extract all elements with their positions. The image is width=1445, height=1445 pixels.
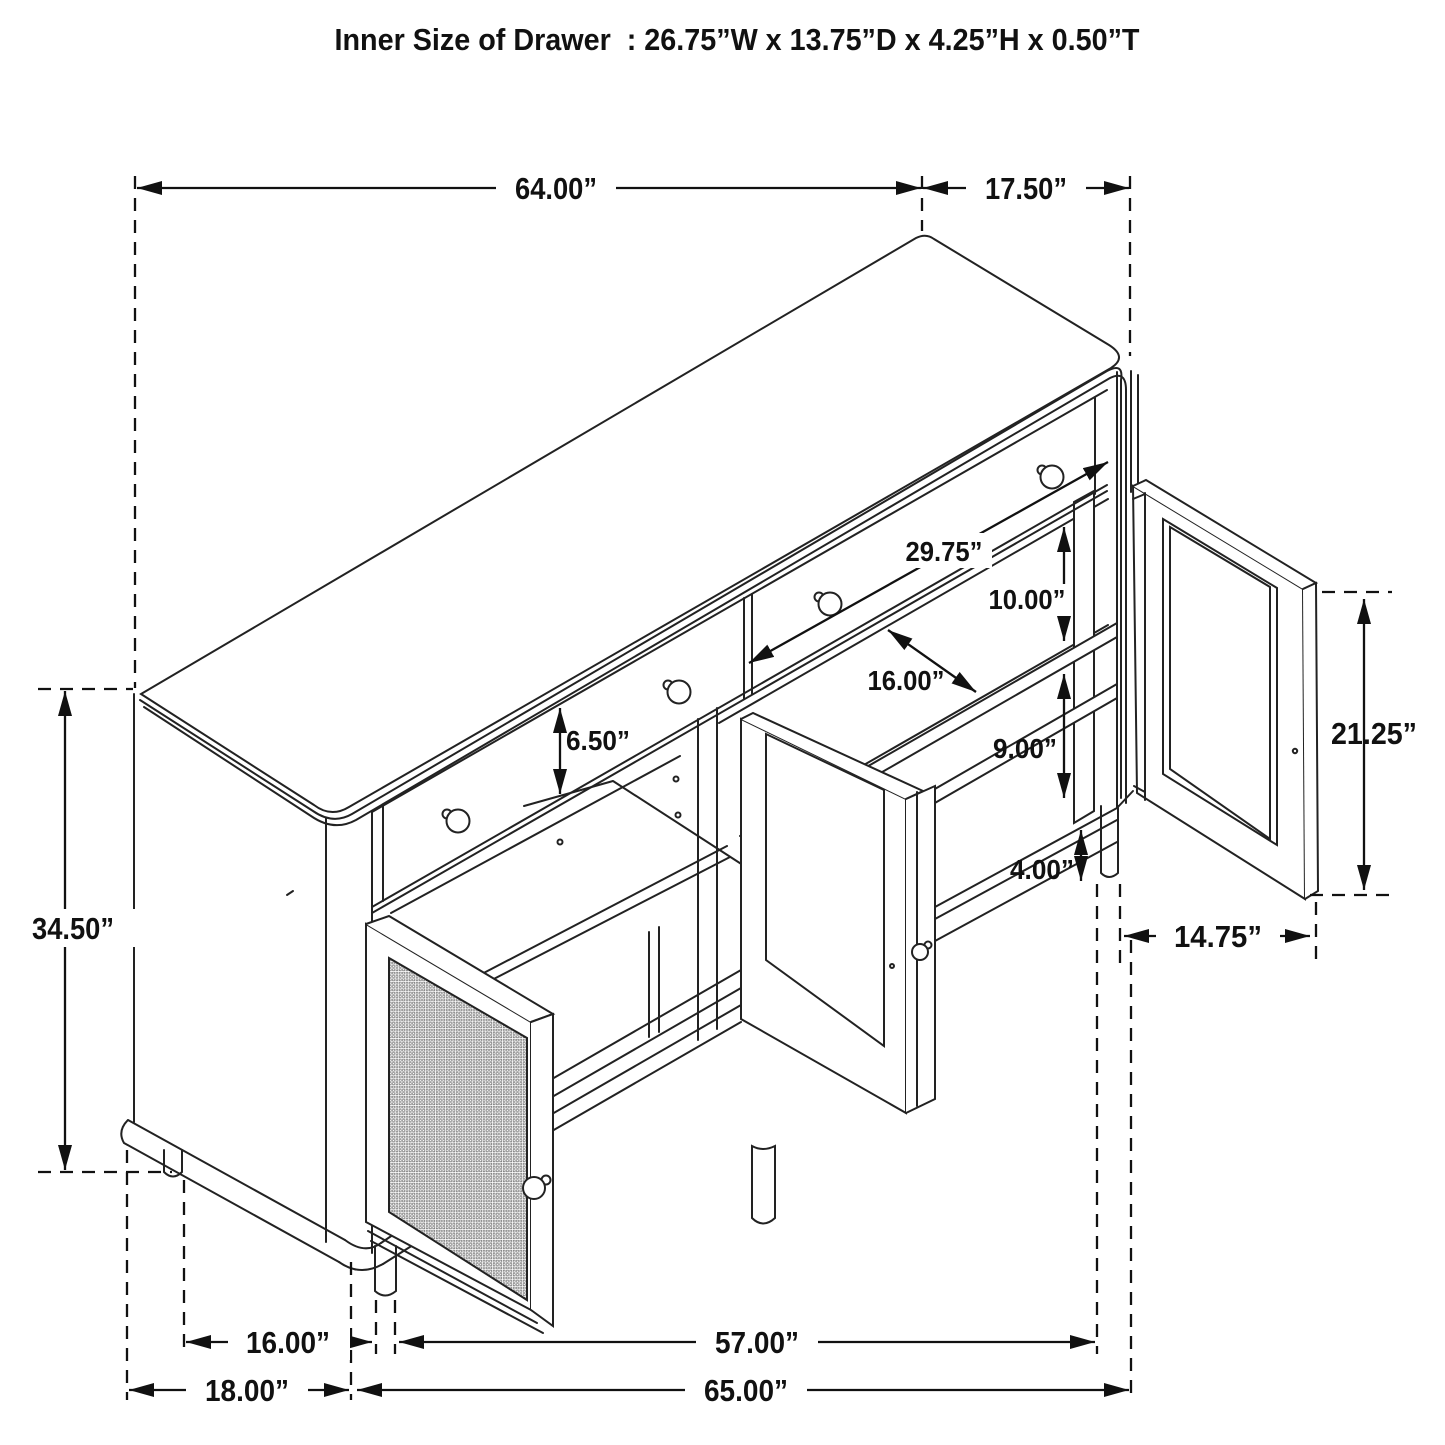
svg-text:9.00”: 9.00” xyxy=(993,733,1057,764)
svg-text:21.25”: 21.25” xyxy=(1331,716,1417,751)
svg-text:18.00”: 18.00” xyxy=(205,1373,289,1408)
svg-text:14.75”: 14.75” xyxy=(1174,919,1262,954)
svg-text:34.50”: 34.50” xyxy=(32,911,114,946)
svg-text:29.75”: 29.75” xyxy=(906,536,983,567)
svg-text:10.00”: 10.00” xyxy=(989,584,1066,615)
svg-text:57.00”: 57.00” xyxy=(715,1325,799,1360)
svg-text:64.00”: 64.00” xyxy=(515,171,597,206)
svg-text:4.00”: 4.00” xyxy=(1010,854,1074,885)
svg-text:16.00”: 16.00” xyxy=(868,665,945,696)
svg-text:65.00”: 65.00” xyxy=(704,1373,788,1408)
svg-text:Inner Size of Drawer : 26.75”: Inner Size of Drawer : 26.75”W x 13.75”D… xyxy=(335,22,1140,57)
svg-text:17.50”: 17.50” xyxy=(985,171,1067,206)
svg-text:16.00”: 16.00” xyxy=(246,1325,330,1360)
svg-text:6.50”: 6.50” xyxy=(566,725,630,756)
